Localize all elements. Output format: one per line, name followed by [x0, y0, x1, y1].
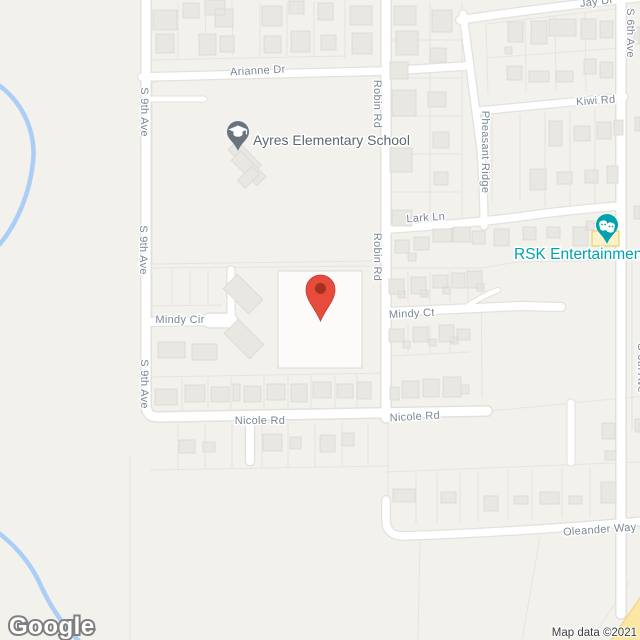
poi-label-school[interactable]: Ayres Elementary School	[253, 132, 410, 148]
street-label-mindy-ct: Mindy Ct	[389, 307, 435, 321]
street-label-pheasant-ridge: Pheasant Ridge	[479, 111, 491, 193]
map-data-copyright: Map data ©2021	[552, 627, 637, 639]
street-label-mindy-cir: Mindy Cir	[155, 314, 204, 326]
red-pin-inner-dot	[315, 283, 326, 294]
mask-eye-dot	[604, 224, 606, 226]
street-label-nicole-rd: Nicole Rd	[235, 415, 285, 427]
street-label-s-9th-ave: S 9th Ave	[138, 87, 150, 137]
street-label-s-6th-ave: S 6th Ave	[624, 8, 636, 58]
mask-eye-dot	[612, 226, 614, 228]
graduation-cap-icon	[234, 131, 243, 137]
street-label-s-9th-ave: S 9th Ave	[138, 359, 150, 409]
map-canvas[interactable]: Arianne Dr S 9th Ave S 9th Ave S 9th Ave…	[0, 0, 640, 640]
street-label-s-6th-ave: S 6th Ave	[635, 343, 640, 393]
google-logo[interactable]: Google	[9, 613, 95, 640]
poi-label-entertainment[interactable]: RSK Entertainment	[514, 246, 640, 263]
road-mindy-cir-bulb	[203, 314, 237, 327]
street-label-robin-rd: Robin Rd	[371, 80, 383, 128]
street-label-s-9th-ave: S 9th Ave	[137, 225, 149, 275]
mask-eye-dot	[601, 224, 603, 226]
map-svg: Arianne Dr S 9th Ave S 9th Ave S 9th Ave…	[0, 0, 640, 640]
street-label-robin-rd: Robin Rd	[371, 233, 383, 281]
mask-eye-dot	[609, 226, 611, 228]
